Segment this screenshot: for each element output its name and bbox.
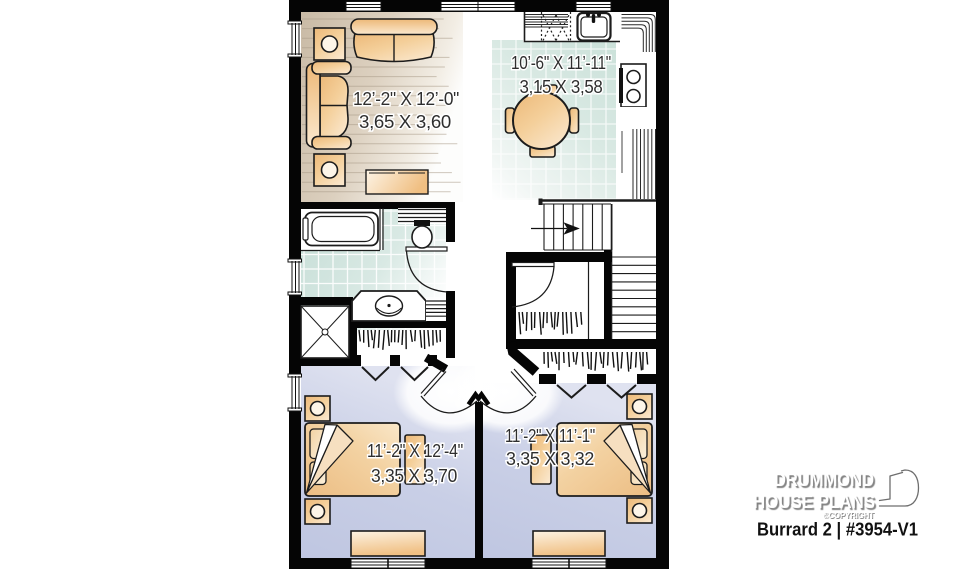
svg-text:HOUSE PLANS: HOUSE PLANS xyxy=(753,491,875,512)
svg-text:10’-6" X 11’-11": 10’-6" X 11’-11" xyxy=(511,53,611,73)
svg-text:3,15 X 3,58: 3,15 X 3,58 xyxy=(520,77,603,97)
svg-text:3,35 X 3,32: 3,35 X 3,32 xyxy=(506,449,594,469)
svg-text:3,35 X 3,70: 3,35 X 3,70 xyxy=(371,466,457,486)
svg-text:12’-2" X 12’-0": 12’-2" X 12’-0" xyxy=(353,89,459,109)
svg-text:3,65 X 3,60: 3,65 X 3,60 xyxy=(359,112,451,132)
svg-text:11’-2" X 12’-4": 11’-2" X 12’-4" xyxy=(367,441,463,461)
svg-text:11’-2" X 11’-1": 11’-2" X 11’-1" xyxy=(505,426,595,446)
svg-text:DRUMMOND: DRUMMOND xyxy=(774,469,874,490)
svg-text:Burrard 2 | #3954-V1: Burrard 2 | #3954-V1 xyxy=(757,520,918,540)
